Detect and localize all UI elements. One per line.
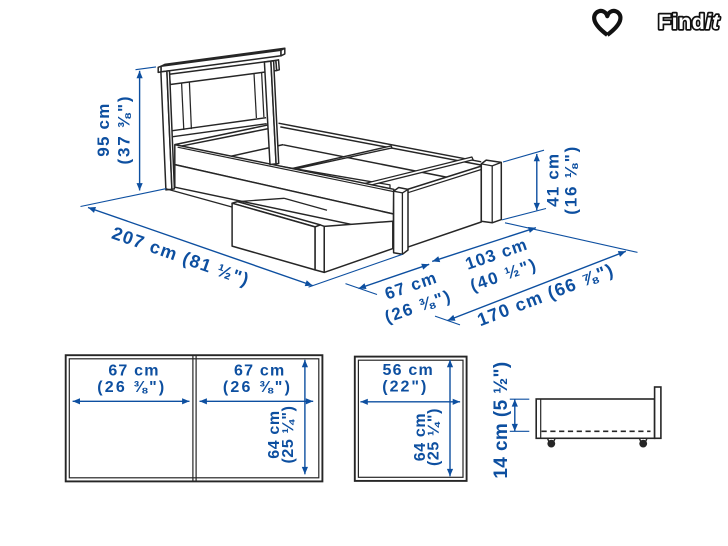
svg-text:14 cm (5 ½"): 14 cm (5 ½")	[491, 361, 512, 478]
svg-text:(25 ¼"): (25 ¼")	[426, 408, 443, 466]
svg-text:(22"): (22")	[382, 379, 428, 396]
svg-text:(25 ¼"): (25 ¼")	[280, 405, 297, 463]
svg-text:Findit: Findit	[658, 10, 720, 34]
svg-text:95 cm: 95 cm	[94, 102, 113, 156]
svg-text:41 cm: 41 cm	[543, 153, 562, 207]
svg-text:(16 ⅛"): (16 ⅛")	[562, 145, 581, 215]
svg-text:67 cm: 67 cm	[234, 362, 285, 379]
svg-text:56 cm: 56 cm	[383, 362, 434, 379]
svg-text:(37 ⅜"): (37 ⅜")	[115, 95, 134, 165]
svg-text:(26 ⅜"): (26 ⅜")	[223, 379, 292, 396]
svg-text:67 cm: 67 cm	[108, 362, 159, 379]
svg-text:(26 ⅜"): (26 ⅜")	[97, 379, 166, 396]
